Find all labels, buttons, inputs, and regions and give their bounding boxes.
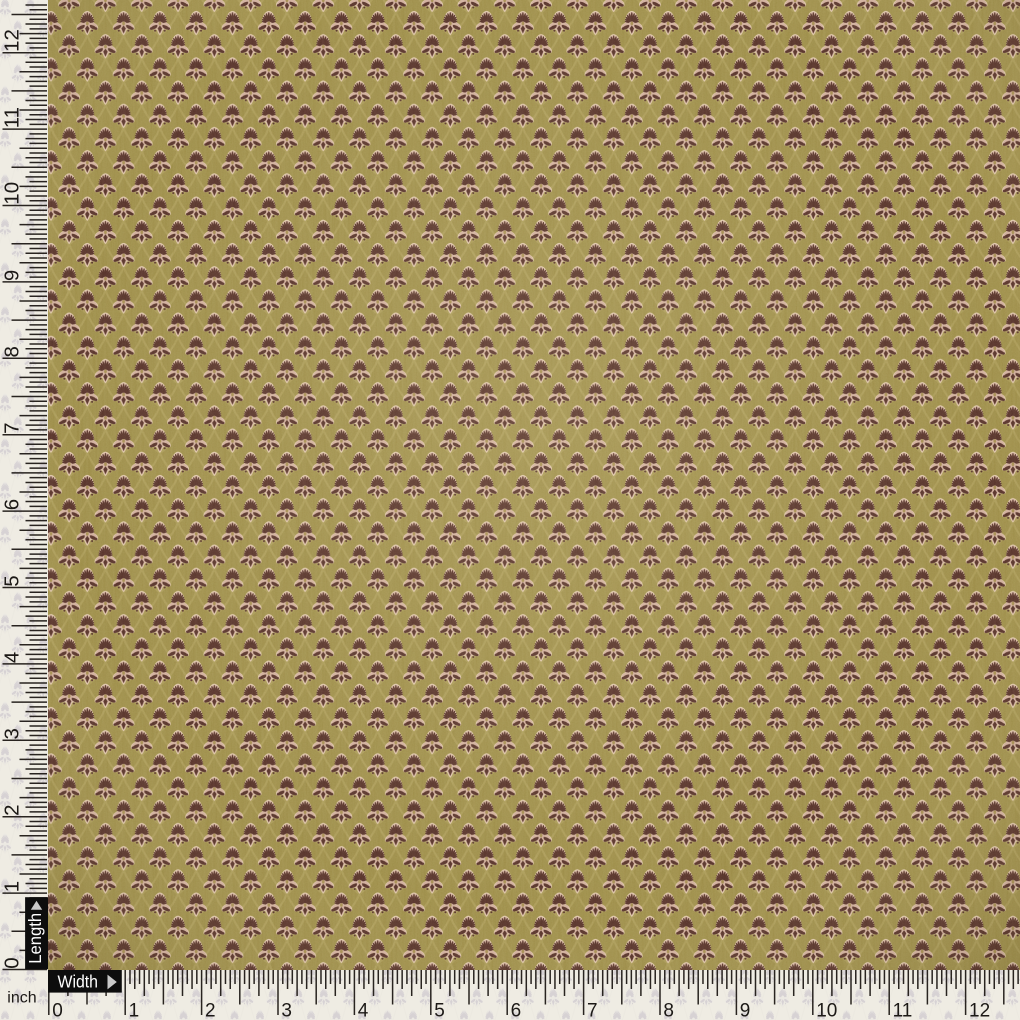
svg-text:7: 7 xyxy=(1,422,24,433)
svg-text:12: 12 xyxy=(1,29,24,52)
svg-text:5: 5 xyxy=(1,575,24,586)
svg-text:8: 8 xyxy=(1,346,24,357)
svg-text:inch: inch xyxy=(7,989,36,1006)
svg-text:11: 11 xyxy=(1,107,24,128)
svg-text:12: 12 xyxy=(969,1000,990,1020)
svg-text:4: 4 xyxy=(1,652,24,663)
svg-text:2: 2 xyxy=(205,1000,216,1020)
svg-text:5: 5 xyxy=(434,1000,445,1020)
svg-text:0: 0 xyxy=(1,957,24,968)
svg-text:Width: Width xyxy=(58,972,99,992)
svg-text:9: 9 xyxy=(1,270,24,281)
svg-text:10: 10 xyxy=(816,1000,837,1020)
svg-text:8: 8 xyxy=(663,1000,674,1020)
svg-text:7: 7 xyxy=(587,1000,598,1020)
svg-text:0: 0 xyxy=(52,1000,63,1020)
svg-text:3: 3 xyxy=(281,1000,292,1020)
svg-text:6: 6 xyxy=(1,499,24,510)
svg-text:10: 10 xyxy=(1,182,24,205)
svg-text:3: 3 xyxy=(1,728,24,739)
svg-text:4: 4 xyxy=(358,1000,369,1020)
svg-text:9: 9 xyxy=(740,1000,751,1020)
svg-text:11: 11 xyxy=(893,1000,913,1020)
svg-text:1: 1 xyxy=(1,881,24,892)
svg-text:1: 1 xyxy=(129,1000,140,1020)
svg-text:6: 6 xyxy=(511,1000,522,1020)
svg-text:Length: Length xyxy=(25,913,45,964)
svg-text:2: 2 xyxy=(1,804,24,815)
